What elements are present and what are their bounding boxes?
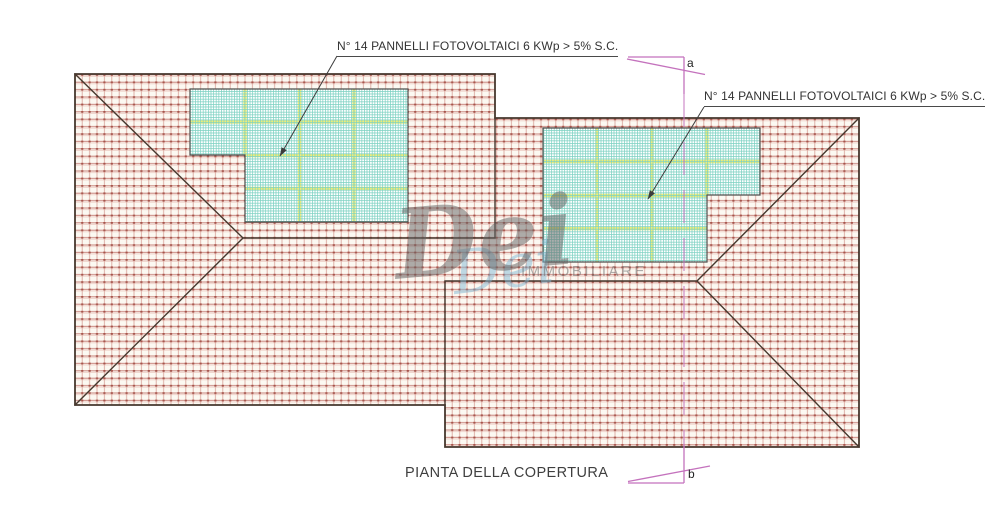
section-letter-b: b — [688, 467, 695, 481]
roof-plan-canvas: N° 14 PANNELLI FOTOVOLTAICI 6 KWp > 5% S… — [0, 0, 1000, 525]
plan-title: PIANTA DELLA COPERTURA — [405, 465, 608, 481]
roof-plan-drawing — [0, 0, 1000, 525]
right-panel-label: N° 14 PANNELLI FOTOVOLTAICI 6 KWp > 5% S… — [704, 89, 985, 107]
section-letter-a: a — [687, 56, 694, 70]
left-panel-label: N° 14 PANNELLI FOTOVOLTAICI 6 KWp > 5% S… — [337, 39, 618, 57]
section-marker-bottom — [628, 444, 710, 483]
